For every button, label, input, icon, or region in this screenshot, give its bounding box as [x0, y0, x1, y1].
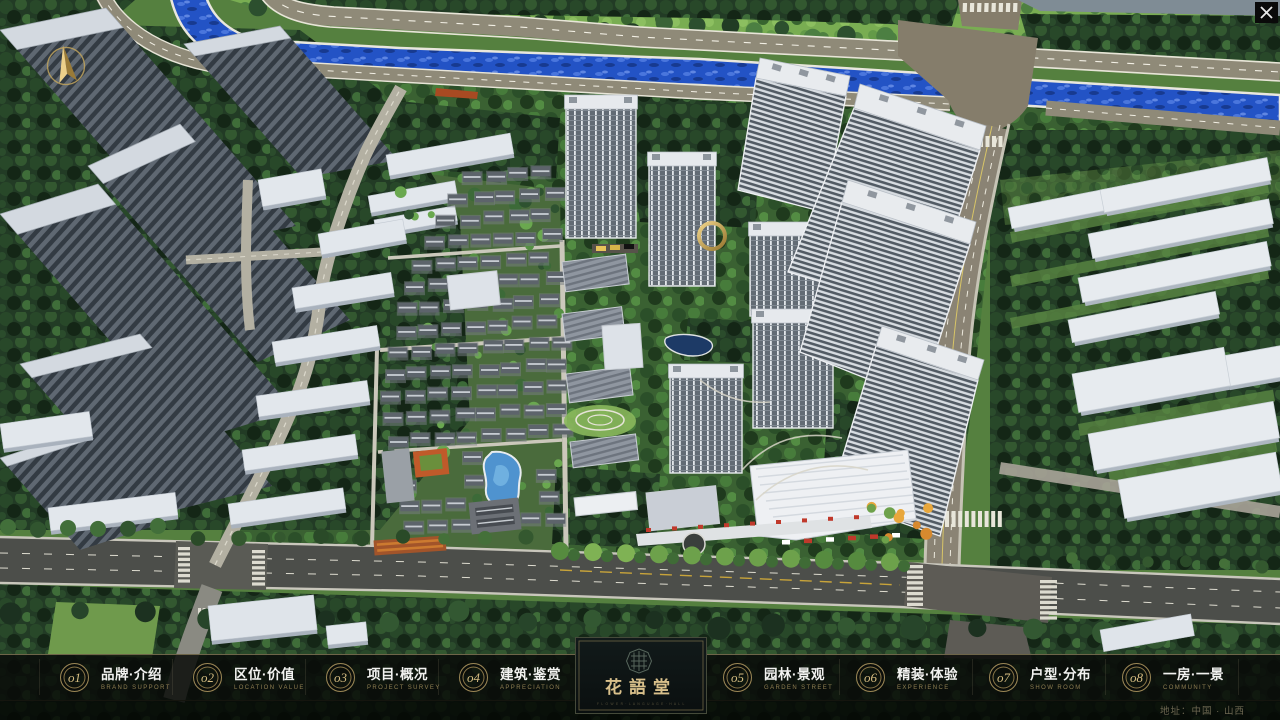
svg-text:F L O W E R · L A N G U A G E: F L O W E R · L A N G U A G E · H A L L: [597, 702, 685, 706]
svg-text:花語堂: 花語堂: [605, 677, 677, 697]
